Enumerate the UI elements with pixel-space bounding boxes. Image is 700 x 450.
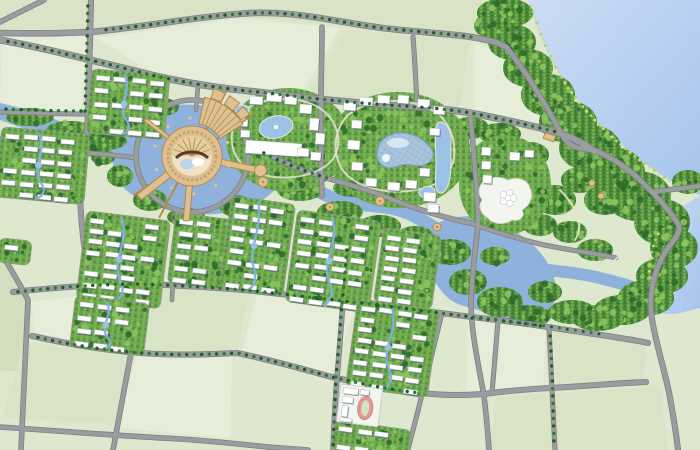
- row-house: [58, 149, 72, 155]
- tree-cluster: [553, 221, 587, 243]
- residential-block-southeast: [346, 299, 440, 398]
- row-house: [57, 173, 71, 179]
- tree-cluster: [584, 185, 626, 215]
- forest-pavilion: [598, 193, 604, 199]
- campus-building: [297, 148, 310, 158]
- plaza-north-access: [196, 86, 198, 110]
- row-house: [58, 161, 72, 167]
- campus-building: [365, 178, 378, 188]
- campus-building: [524, 150, 535, 159]
- campus-building: [405, 180, 418, 190]
- residential-block-small: [0, 238, 32, 265]
- row-house: [56, 184, 70, 190]
- row-house: [6, 134, 20, 140]
- row-house: [130, 91, 144, 97]
- campus-building: [347, 140, 361, 151]
- row-house: [128, 130, 142, 136]
- row-house: [22, 158, 36, 164]
- tree-cluster: [107, 165, 133, 187]
- campus-building: [387, 182, 401, 192]
- campus-building: [509, 152, 521, 162]
- campus-building: [433, 106, 446, 116]
- residential-block: [219, 196, 295, 296]
- row-house: [3, 168, 17, 174]
- school-building: [341, 405, 348, 417]
- row-house: [41, 159, 55, 165]
- plaza-dot: [155, 168, 158, 171]
- plaza-dot: [192, 192, 195, 195]
- row-house: [19, 192, 33, 198]
- residential-block-west: [0, 127, 90, 205]
- row-house: [24, 134, 38, 140]
- campus-building: [419, 168, 431, 178]
- plaza-dot: [154, 145, 157, 148]
- plaza-sculpture: [192, 158, 204, 166]
- residential-block-center: [285, 210, 381, 314]
- row-house: [148, 106, 162, 112]
- campus-building: [249, 96, 264, 106]
- row-house: [40, 171, 54, 177]
- campus-building: [309, 118, 320, 132]
- campus-building: [397, 95, 410, 105]
- campus-building: [351, 162, 364, 172]
- campus-building: [315, 133, 326, 146]
- site-plan-image: [0, 0, 700, 450]
- plaza-dot: [188, 117, 191, 120]
- campus-building: [351, 120, 363, 130]
- row-house: [61, 139, 75, 145]
- campus-building: [429, 128, 441, 137]
- row-house: [95, 88, 109, 94]
- field-parcel: [118, 356, 232, 438]
- row-house: [94, 102, 108, 108]
- plaza-spoke-node: [255, 165, 267, 177]
- forest-pavilion: [589, 180, 595, 186]
- fountain-dot: [274, 125, 278, 129]
- row-house: [149, 93, 163, 99]
- plaza-water-feature: [180, 159, 194, 169]
- row-house: [41, 148, 55, 154]
- school-building: [360, 389, 370, 395]
- tree-cluster: [449, 269, 487, 295]
- campus-building: [310, 152, 322, 162]
- row-house: [21, 170, 35, 176]
- campus-building: [423, 192, 437, 203]
- row-house: [54, 197, 68, 203]
- plaza-dot: [227, 164, 230, 167]
- row-house: [42, 136, 56, 142]
- residential-block: [374, 228, 442, 310]
- row-house: [128, 117, 142, 123]
- plaza-dot: [214, 184, 217, 187]
- campus-building: [299, 104, 313, 115]
- campus-building: [427, 204, 440, 214]
- school-building: [342, 396, 354, 403]
- row-house: [150, 81, 164, 87]
- plaza-dot: [226, 141, 229, 144]
- school-grounds: [336, 384, 382, 427]
- campus-building: [481, 147, 492, 157]
- residential-block-center-west: [76, 211, 170, 309]
- plaza-dot: [170, 186, 173, 189]
- row-house: [1, 180, 15, 186]
- campus-building: [240, 130, 251, 139]
- row-house: [24, 146, 38, 152]
- row-house: [132, 78, 146, 84]
- campus-divider-road: [321, 27, 322, 196]
- campus-building: [481, 161, 492, 171]
- row-house: [96, 75, 110, 81]
- map-canvas: [0, 0, 700, 450]
- row-house: [93, 114, 107, 120]
- school-campus: [336, 384, 382, 427]
- tree-cluster: [548, 300, 596, 324]
- plaza-dot: [211, 123, 214, 126]
- row-house: [20, 182, 34, 188]
- plaza-dot: [167, 125, 170, 128]
- row-house: [129, 104, 143, 110]
- campus-building: [482, 175, 493, 185]
- row-house: [146, 132, 160, 138]
